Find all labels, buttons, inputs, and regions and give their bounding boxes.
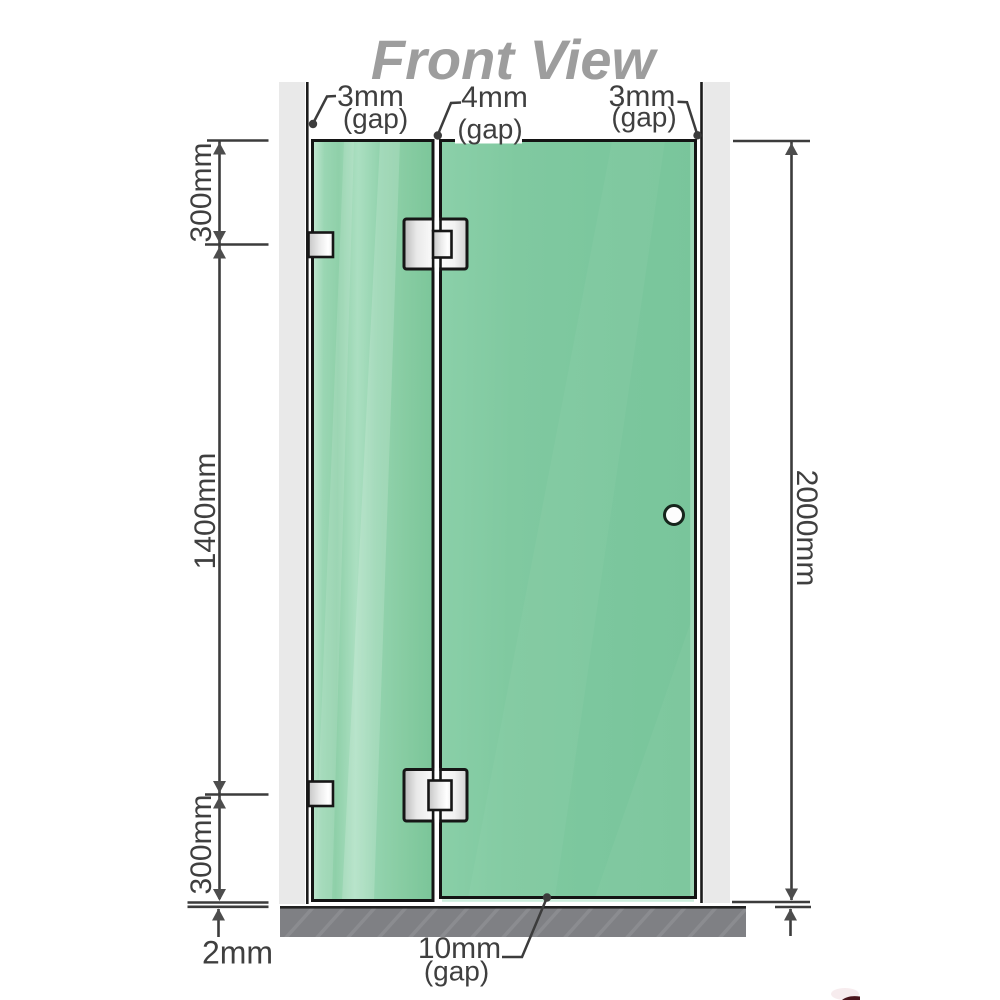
svg-text:(gap): (gap) (424, 956, 489, 987)
svg-text:1400mm: 1400mm (189, 453, 222, 570)
svg-text:(gap): (gap) (343, 103, 408, 134)
svg-text:300mm: 300mm (185, 794, 218, 894)
svg-text:300mm: 300mm (185, 142, 218, 242)
svg-text:2000mm: 2000mm (790, 470, 823, 587)
svg-text:(gap): (gap) (611, 102, 676, 133)
svg-text:2mm: 2mm (202, 935, 273, 971)
svg-text:(gap): (gap) (457, 114, 522, 145)
svg-text:4mm: 4mm (461, 81, 528, 114)
